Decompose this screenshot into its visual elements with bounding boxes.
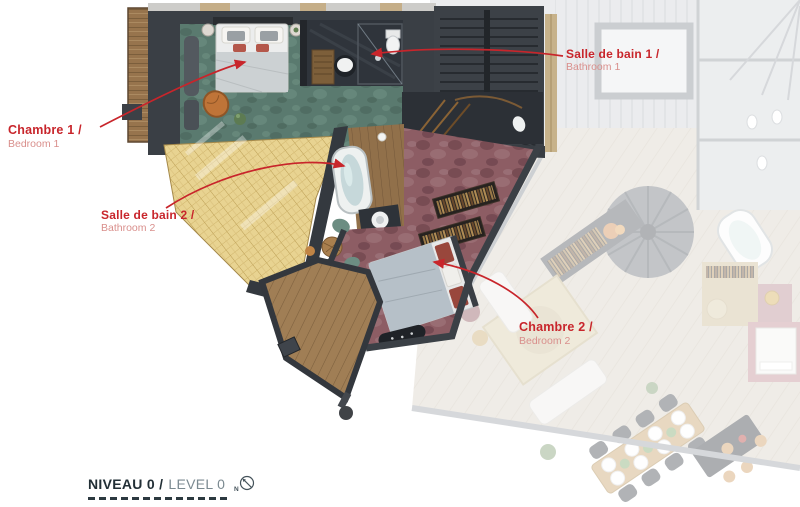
annotation-bathroom1-subtitle: Bathroom 1 [566, 61, 659, 73]
level-title-en: LEVEL 0 [168, 476, 225, 492]
annotation-bedroom1-title: Chambre 1 / [8, 123, 82, 138]
annotation-bedroom1-subtitle: Bedroom 1 [8, 138, 82, 150]
floorplan-drawing [0, 0, 800, 507]
compass-north-icon: N [232, 474, 258, 494]
bedroom1-bed [213, 17, 293, 92]
annotation-bedroom2: Chambre 2 / Bedroom 2 [519, 320, 593, 347]
floorplan-page: Chambre 1 / Bedroom 1 Salle de bain 1 / … [0, 0, 800, 507]
washbasin [337, 58, 353, 72]
stool [305, 246, 315, 256]
compass-north-letter: N [234, 486, 239, 493]
annotation-bedroom2-subtitle: Bedroom 2 [519, 335, 593, 347]
annotation-bathroom1: Salle de bain 1 / Bathroom 1 [566, 47, 659, 74]
level-title-underline [88, 497, 228, 500]
annotation-bathroom1-title: Salle de bain 1 / [566, 47, 659, 61]
annotation-bathroom2-subtitle: Bathroom 2 [101, 222, 194, 234]
plant [234, 113, 246, 125]
level-title-fr: NIVEAU 0 / [88, 476, 163, 492]
annotation-bedroom1: Chambre 1 / Bedroom 1 [8, 123, 82, 150]
level-title-block: NIVEAU 0 / LEVEL 0 N [88, 474, 258, 500]
marker-dot [339, 406, 353, 420]
annotation-bedroom2-title: Chambre 2 / [519, 320, 593, 335]
annotation-bathroom2: Salle de bain 2 / Bathroom 2 [101, 208, 194, 235]
annotation-bathroom2-title: Salle de bain 2 / [101, 208, 194, 222]
